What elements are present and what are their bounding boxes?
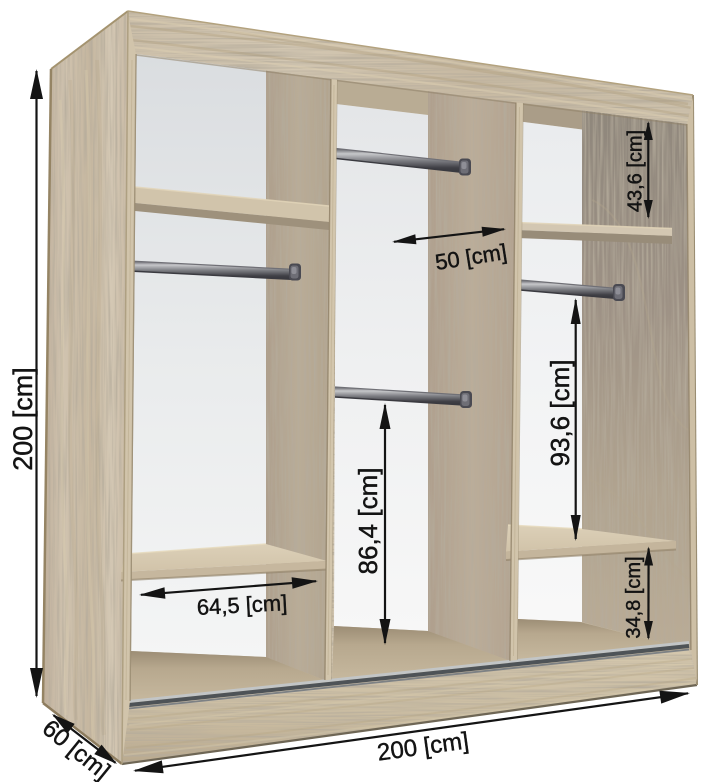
svg-text:43,6 [cm]: 43,6 [cm] [625,130,647,212]
svg-text:93,6 [cm]: 93,6 [cm] [545,360,575,467]
svg-text:64,5 [cm]: 64,5 [cm] [196,590,288,620]
svg-text:200 [cm]: 200 [cm] [8,367,38,471]
svg-text:86,4 [cm]: 86,4 [cm] [353,468,383,575]
svg-text:34,8 [cm]: 34,8 [cm] [623,556,645,638]
